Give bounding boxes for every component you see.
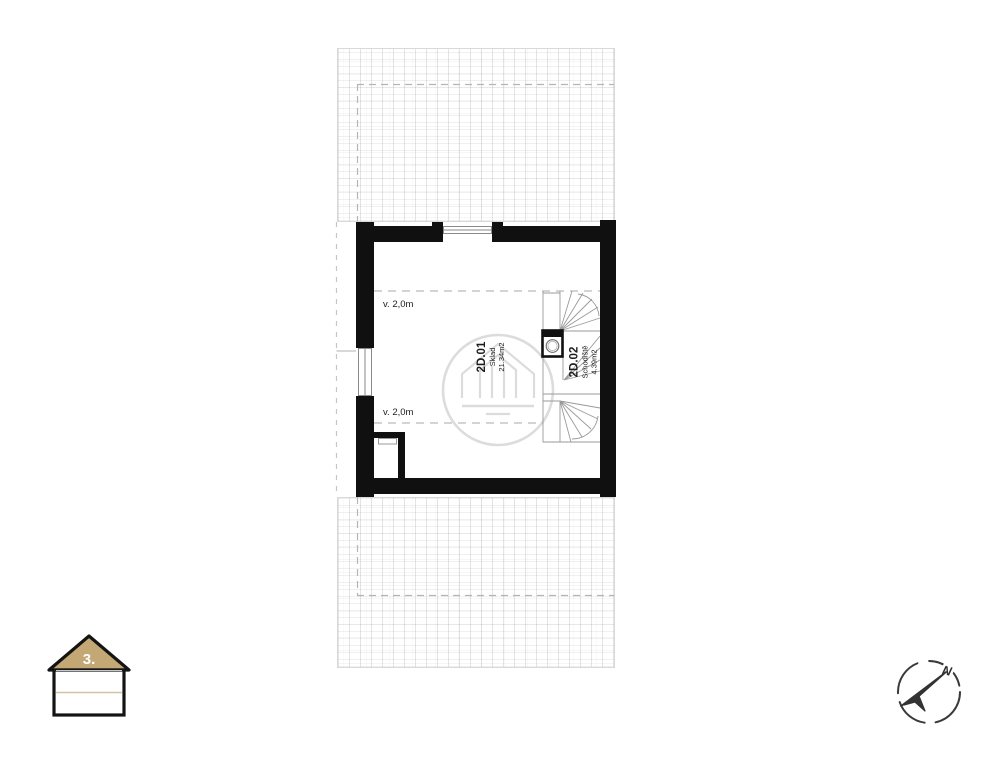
room2-name: Schodiště bbox=[581, 346, 590, 379]
corner-fixture bbox=[379, 439, 397, 445]
floorplan-canvas: 2D.01 Sklad 21.34m2 2D.02 Schodiště 4.39… bbox=[0, 0, 1007, 768]
room1-name: Sklad bbox=[488, 348, 497, 367]
room2-id: 2D.02 bbox=[569, 347, 581, 378]
north-arrow-icon bbox=[901, 672, 946, 711]
height-label-lower: v. 2,0m bbox=[383, 407, 414, 418]
floor-indicator-label: 3. bbox=[83, 651, 96, 668]
floor-indicator-button[interactable]: 3. bbox=[44, 629, 136, 721]
room2-area: 4.39m2 bbox=[590, 349, 599, 374]
height-label-upper: v. 2,0m bbox=[383, 299, 414, 310]
room1-area: 21.34m2 bbox=[497, 342, 506, 371]
compass: N bbox=[891, 654, 969, 732]
room-labels: 2D.01 Sklad 21.34m2 2D.02 Schodiště 4.39… bbox=[383, 299, 599, 418]
room1-id: 2D.01 bbox=[476, 341, 488, 372]
plan-drawing: 2D.01 Sklad 21.34m2 2D.02 Schodiště 4.39… bbox=[0, 0, 1007, 768]
chimney-block bbox=[542, 330, 563, 357]
